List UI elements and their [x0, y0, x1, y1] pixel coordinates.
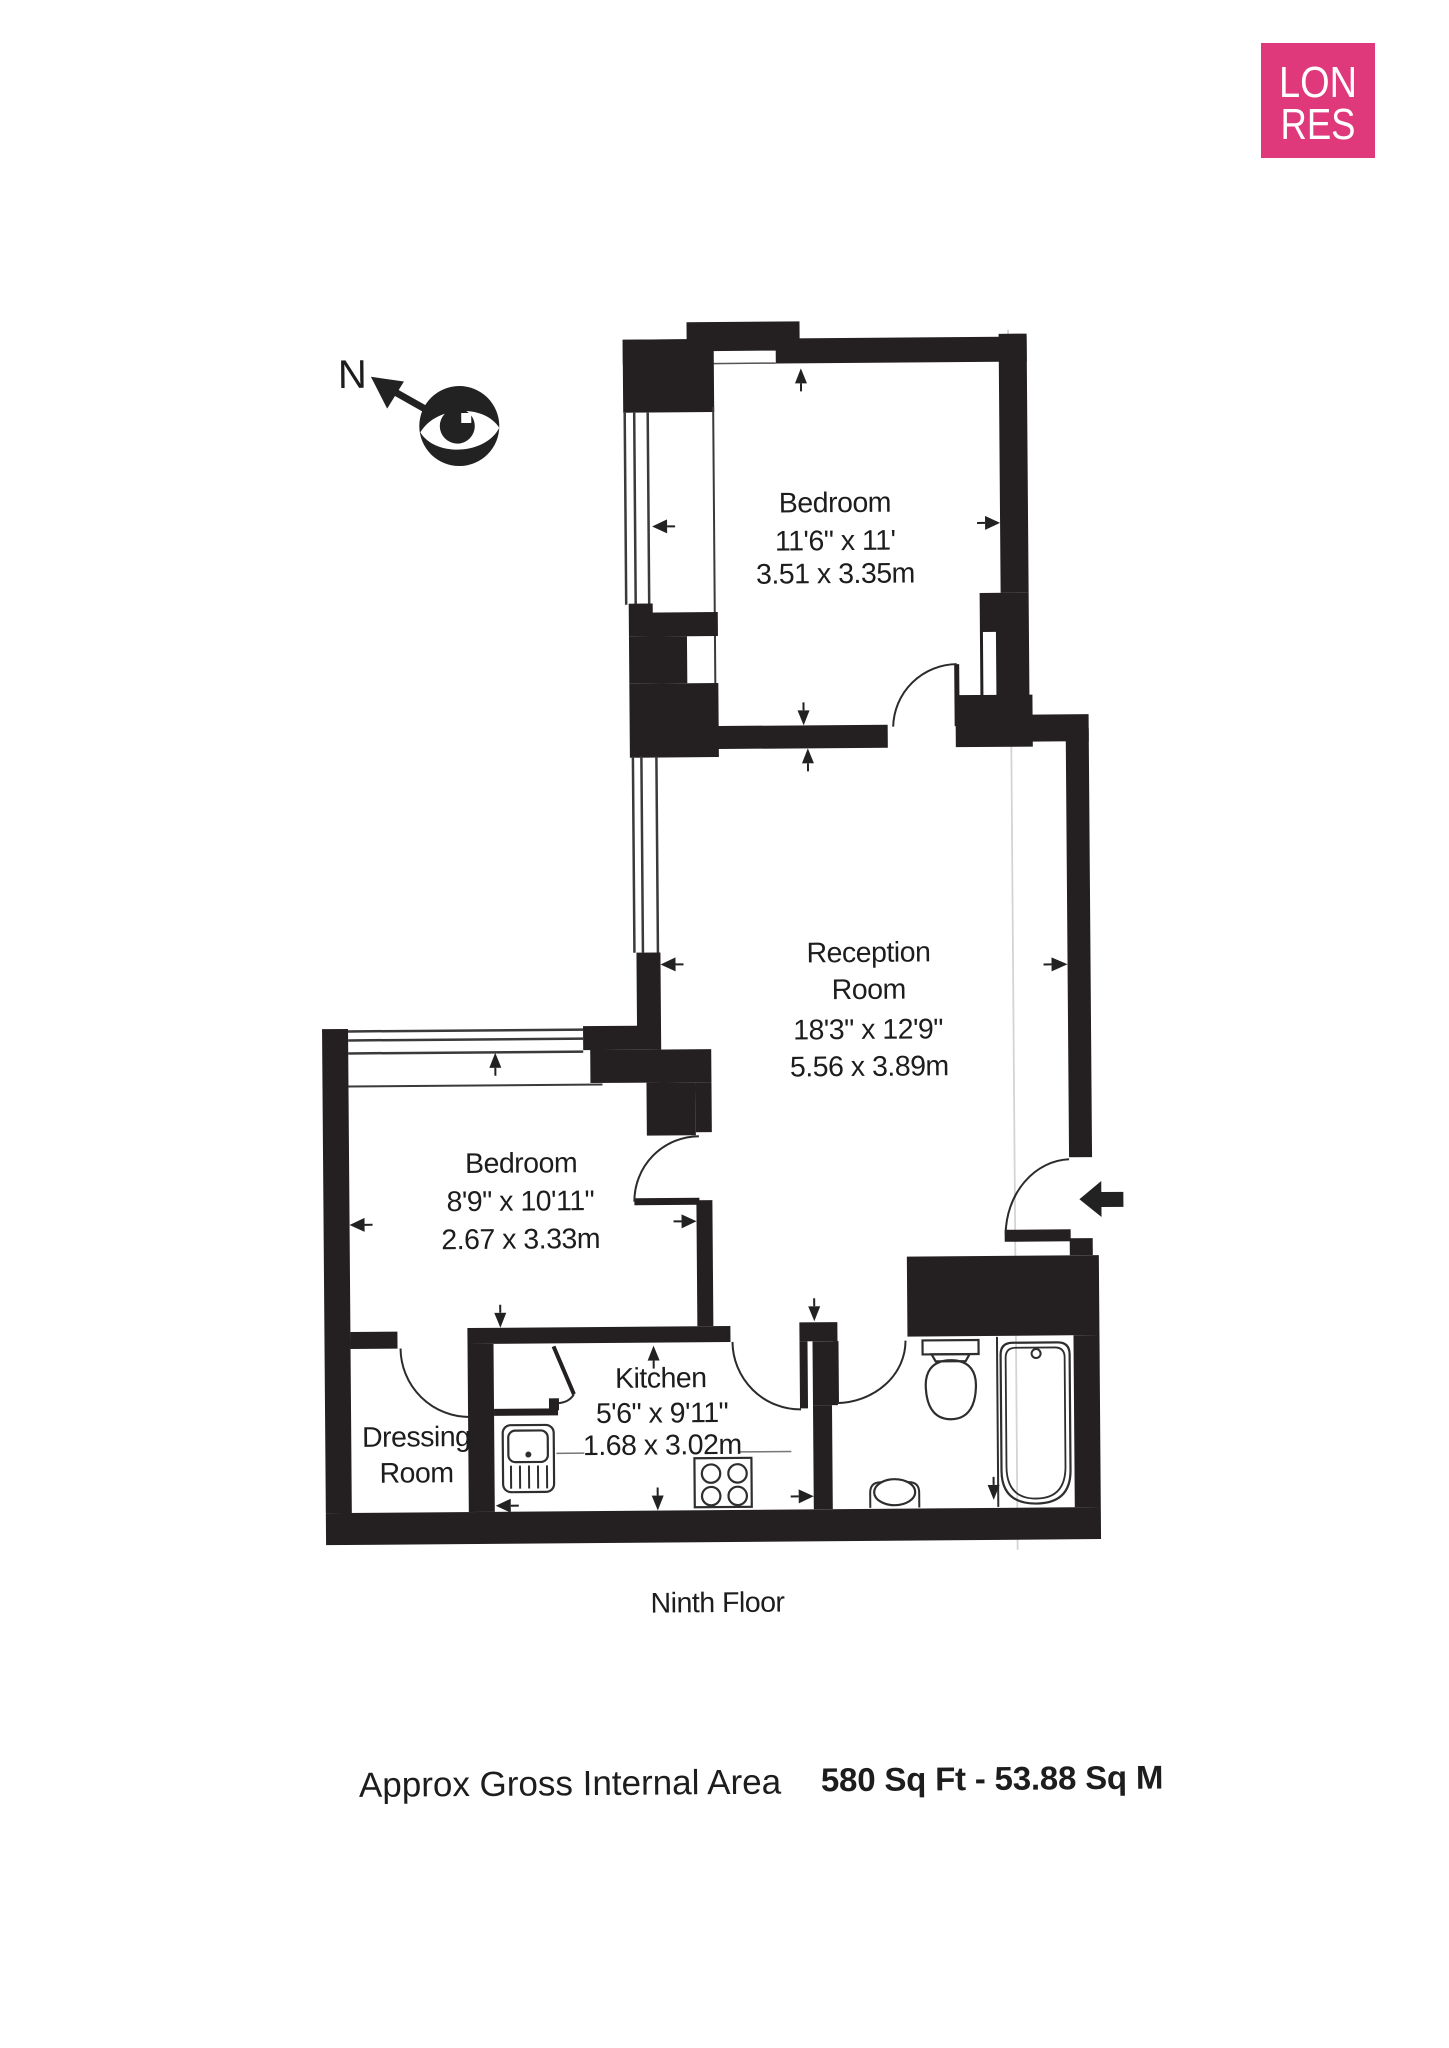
- svg-text:11'6" x 11': 11'6" x 11': [775, 525, 896, 558]
- svg-text:2.67 x 3.33m: 2.67 x 3.33m: [441, 1223, 600, 1256]
- svg-text:18'3" x 12'9": 18'3" x 12'9": [793, 1013, 943, 1046]
- svg-text:Room: Room: [379, 1457, 453, 1490]
- svg-text:Ninth Floor: Ninth Floor: [650, 1587, 785, 1620]
- svg-text:Reception: Reception: [806, 936, 930, 969]
- svg-text:RES: RES: [1281, 100, 1356, 149]
- svg-text:580 Sq Ft - 53.88 Sq M: 580 Sq Ft - 53.88 Sq M: [821, 1759, 1163, 1799]
- svg-text:5.56 x 3.89m: 5.56 x 3.89m: [790, 1050, 949, 1083]
- svg-text:Bedroom: Bedroom: [465, 1147, 577, 1180]
- svg-text:Dressing: Dressing: [362, 1421, 471, 1454]
- svg-text:Bedroom: Bedroom: [779, 487, 891, 520]
- svg-text:N: N: [338, 353, 367, 397]
- svg-text:Approx Gross Internal Area: Approx Gross Internal Area: [359, 1763, 782, 1805]
- svg-text:Kitchen: Kitchen: [615, 1362, 707, 1395]
- svg-text:5'6" x 9'11": 5'6" x 9'11": [596, 1397, 729, 1430]
- svg-text:1.68 x 3.02m: 1.68 x 3.02m: [583, 1429, 742, 1462]
- svg-text:Room: Room: [832, 974, 906, 1007]
- svg-text:8'9" x 10'11": 8'9" x 10'11": [446, 1185, 594, 1218]
- svg-text:3.51 x 3.35m: 3.51 x 3.35m: [756, 557, 915, 590]
